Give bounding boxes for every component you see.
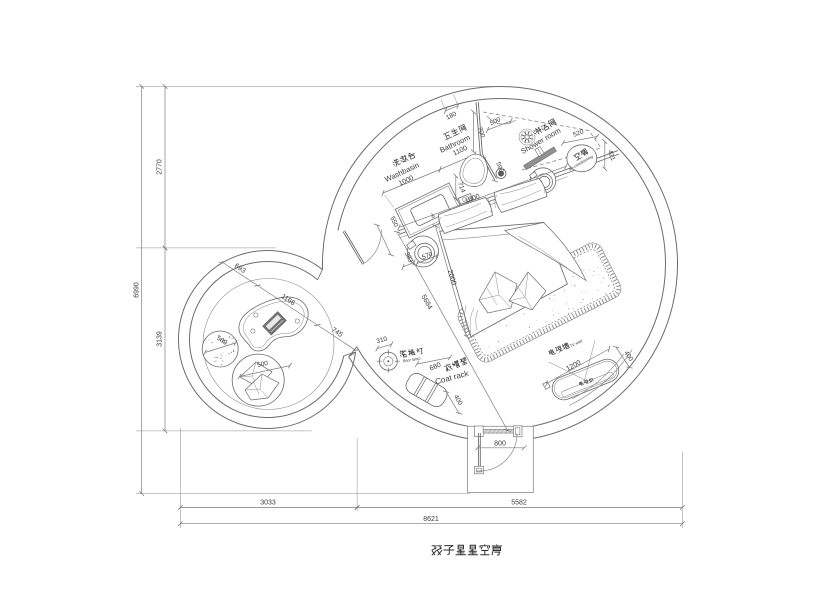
svg-text:310: 310: [376, 335, 389, 345]
svg-text:800: 800: [494, 440, 506, 447]
svg-text:8621: 8621: [423, 516, 439, 523]
svg-text:660: 660: [429, 362, 443, 373]
svg-text:TV wall: TV wall: [569, 338, 583, 348]
svg-text:6990: 6990: [133, 282, 140, 298]
svg-text:5684: 5684: [419, 294, 433, 311]
svg-text:Coat rack: Coat rack: [434, 369, 470, 387]
svg-text:180: 180: [445, 111, 458, 122]
svg-text:3033: 3033: [260, 500, 276, 507]
svg-text:5582: 5582: [511, 500, 527, 507]
svg-text:2770: 2770: [157, 159, 164, 175]
svg-text:520: 520: [572, 128, 585, 138]
svg-text:700: 700: [476, 126, 486, 139]
svg-text:3139: 3139: [157, 331, 164, 347]
svg-text:421: 421: [606, 149, 616, 162]
svg-text:745: 745: [330, 327, 344, 339]
svg-text:550: 550: [388, 215, 399, 228]
